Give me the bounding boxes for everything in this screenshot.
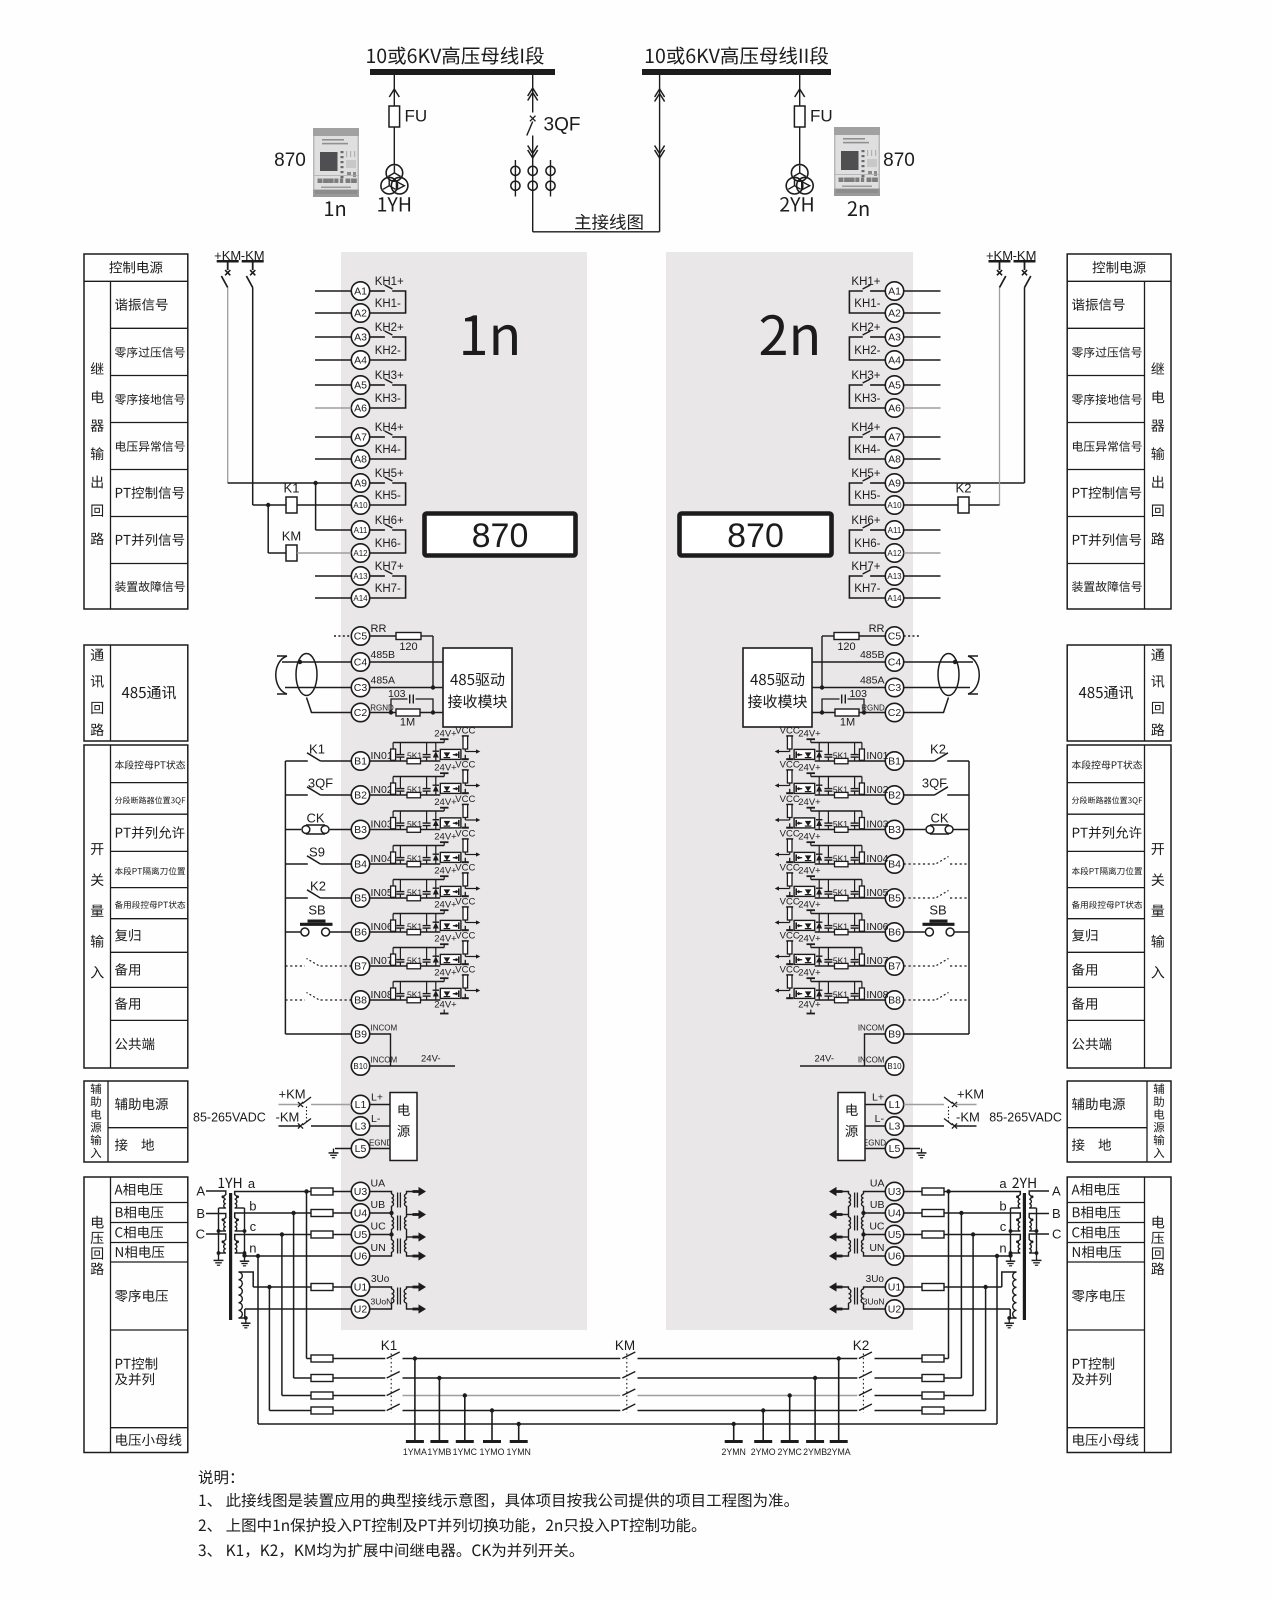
- svg-text:U3: U3: [888, 1186, 902, 1198]
- svg-text:IN08: IN08: [866, 989, 888, 1001]
- svg-text:U3: U3: [354, 1186, 368, 1198]
- svg-text:L-: L-: [371, 1113, 381, 1125]
- svg-text:1YMB: 1YMB: [427, 1447, 451, 1457]
- svg-text:IN06: IN06: [371, 921, 393, 933]
- svg-text:C5: C5: [354, 631, 368, 643]
- svg-text:-KM: -KM: [276, 1110, 300, 1125]
- svg-text:UC: UC: [371, 1221, 387, 1233]
- svg-text:KH2+: KH2+: [851, 322, 880, 334]
- svg-text:C3: C3: [888, 682, 902, 694]
- svg-text:2YMA: 2YMA: [827, 1447, 851, 1457]
- svg-text:K2: K2: [930, 742, 946, 757]
- svg-text:FU: FU: [405, 107, 428, 126]
- svg-text:IN06: IN06: [866, 921, 888, 933]
- svg-text:C2: C2: [888, 707, 902, 719]
- svg-text:L+: L+: [371, 1092, 383, 1104]
- svg-text:1M: 1M: [840, 717, 855, 729]
- svg-text:1YMA: 1YMA: [403, 1447, 427, 1457]
- svg-text:KH4-: KH4-: [854, 444, 880, 456]
- svg-text:B8: B8: [888, 995, 901, 1007]
- svg-text:VCC: VCC: [780, 931, 800, 942]
- svg-text:KH5-: KH5-: [854, 490, 880, 502]
- svg-text:A: A: [1052, 1184, 1061, 1199]
- svg-text:U5: U5: [888, 1229, 902, 1241]
- svg-text:U2: U2: [354, 1304, 368, 1316]
- svg-text:SB: SB: [308, 903, 325, 918]
- svg-text:24V+: 24V+: [434, 1000, 457, 1011]
- svg-text:B1: B1: [888, 756, 901, 768]
- svg-text:A7: A7: [354, 432, 367, 444]
- svg-text:24V+: 24V+: [434, 900, 457, 911]
- svg-text:+KM: +KM: [957, 1087, 984, 1102]
- svg-text:A2: A2: [354, 308, 367, 320]
- svg-text:EGND: EGND: [863, 1139, 886, 1148]
- svg-text:RR: RR: [371, 623, 387, 635]
- svg-text:K1: K1: [381, 1338, 398, 1353]
- svg-text:24V+: 24V+: [434, 797, 457, 808]
- svg-text:B7: B7: [354, 961, 367, 973]
- svg-text:A4: A4: [354, 355, 367, 367]
- svg-text:B2: B2: [888, 790, 901, 802]
- svg-text:VCC: VCC: [780, 794, 800, 805]
- svg-text:KH4-: KH4-: [375, 444, 401, 456]
- svg-text:KH1-: KH1-: [375, 298, 401, 310]
- svg-text:3QF: 3QF: [308, 776, 333, 791]
- svg-text:INCOM: INCOM: [858, 1024, 885, 1033]
- svg-text:B2: B2: [354, 790, 367, 802]
- svg-text:1M: 1M: [400, 717, 415, 729]
- svg-text:KH2+: KH2+: [375, 322, 404, 334]
- svg-text:K1: K1: [309, 742, 325, 757]
- svg-text:A5: A5: [888, 380, 901, 392]
- svg-text:A8: A8: [354, 454, 367, 466]
- svg-text:3UoN: 3UoN: [863, 1297, 885, 1307]
- svg-text:K2: K2: [310, 879, 326, 894]
- svg-text:C5: C5: [888, 631, 902, 643]
- svg-text:KH1+: KH1+: [851, 276, 880, 288]
- svg-text:INCOM: INCOM: [371, 1024, 398, 1033]
- svg-text:1YMO: 1YMO: [480, 1447, 505, 1457]
- svg-text:3UoN: 3UoN: [371, 1297, 393, 1307]
- svg-text:2YMC: 2YMC: [777, 1447, 802, 1457]
- svg-text:RR: RR: [869, 623, 885, 635]
- svg-text:FU: FU: [810, 107, 833, 126]
- svg-text:B8: B8: [354, 995, 367, 1007]
- svg-text:B3: B3: [354, 824, 367, 836]
- svg-text:B6: B6: [354, 927, 367, 939]
- svg-text:INCOM: INCOM: [371, 1056, 398, 1065]
- svg-text:A1: A1: [888, 286, 901, 298]
- svg-text:24V+: 24V+: [434, 763, 457, 774]
- svg-text:VCC: VCC: [455, 726, 475, 737]
- svg-text:103: 103: [849, 688, 867, 700]
- svg-text:IN08: IN08: [371, 989, 393, 1001]
- svg-text:870: 870: [274, 150, 306, 171]
- svg-text:VCC: VCC: [780, 863, 800, 874]
- svg-text:a: a: [248, 1176, 256, 1191]
- svg-text:UN: UN: [371, 1242, 386, 1254]
- svg-text:870: 870: [472, 517, 529, 555]
- svg-text:1YMC: 1YMC: [453, 1447, 478, 1457]
- svg-text:24V+: 24V+: [798, 797, 821, 808]
- svg-text:24V+: 24V+: [434, 934, 457, 945]
- svg-text:a: a: [999, 1176, 1007, 1191]
- svg-text:KH7-: KH7-: [375, 583, 401, 595]
- svg-text:IN05: IN05: [866, 887, 888, 899]
- svg-text:A8: A8: [888, 454, 901, 466]
- svg-text:K1: K1: [284, 481, 300, 496]
- svg-text:KH7-: KH7-: [854, 583, 880, 595]
- svg-text:KH5+: KH5+: [375, 468, 404, 480]
- svg-text:U5: U5: [354, 1229, 368, 1241]
- svg-text:A2: A2: [888, 308, 901, 320]
- svg-text:C2: C2: [354, 707, 368, 719]
- svg-text:485A: 485A: [371, 675, 396, 687]
- svg-text:KM: KM: [282, 529, 302, 544]
- svg-text:A12: A12: [353, 549, 368, 558]
- svg-text:VCC: VCC: [455, 897, 475, 908]
- svg-text:A12: A12: [887, 549, 902, 558]
- svg-text:n: n: [999, 1241, 1006, 1256]
- svg-text:485B: 485B: [371, 649, 396, 661]
- svg-text:KH3-: KH3-: [854, 393, 880, 405]
- svg-text:KH4+: KH4+: [851, 422, 880, 434]
- svg-text:24V+: 24V+: [798, 832, 821, 843]
- svg-text:3QF: 3QF: [922, 776, 947, 791]
- svg-text:L+: L+: [872, 1092, 884, 1104]
- svg-text:IN01: IN01: [371, 750, 393, 762]
- svg-text:B: B: [1052, 1206, 1061, 1221]
- svg-text:KM: KM: [615, 1338, 635, 1353]
- svg-text:870: 870: [727, 517, 784, 555]
- svg-text:B: B: [196, 1206, 205, 1221]
- svg-text:A6: A6: [354, 403, 367, 415]
- svg-text:24V+: 24V+: [434, 832, 457, 843]
- svg-text:+KM: +KM: [279, 1087, 306, 1102]
- svg-text:B6: B6: [888, 927, 901, 939]
- svg-text:A9: A9: [354, 478, 367, 490]
- svg-text:B9: B9: [888, 1029, 901, 1041]
- svg-text:n: n: [249, 1241, 256, 1256]
- svg-text:c: c: [250, 1219, 257, 1234]
- svg-text:VCC: VCC: [780, 760, 800, 771]
- svg-text:U4: U4: [888, 1208, 902, 1220]
- svg-text:24V+: 24V+: [434, 866, 457, 877]
- svg-text:KH5+: KH5+: [851, 468, 880, 480]
- svg-text:VCC: VCC: [455, 829, 475, 840]
- svg-text:IN07: IN07: [866, 955, 888, 967]
- svg-text:KH6-: KH6-: [854, 538, 880, 550]
- svg-text:VCC: VCC: [455, 965, 475, 976]
- svg-text:A4: A4: [888, 355, 901, 367]
- svg-text:VCC: VCC: [455, 760, 475, 771]
- svg-text:KH7+: KH7+: [375, 561, 404, 573]
- svg-text:B1: B1: [354, 756, 367, 768]
- svg-text:U6: U6: [888, 1251, 902, 1263]
- svg-text:B4: B4: [888, 859, 901, 871]
- svg-text:3Uo: 3Uo: [866, 1274, 885, 1285]
- svg-text:KH2-: KH2-: [375, 345, 401, 357]
- svg-text:B7: B7: [888, 961, 901, 973]
- svg-text:C3: C3: [354, 682, 368, 694]
- svg-text:C: C: [196, 1227, 205, 1242]
- svg-text:A3: A3: [888, 332, 901, 344]
- svg-text:24V+: 24V+: [798, 934, 821, 945]
- svg-text:A9: A9: [888, 478, 901, 490]
- svg-text:24V+: 24V+: [798, 763, 821, 774]
- svg-text:L-: L-: [875, 1113, 885, 1125]
- svg-text:K2: K2: [853, 1338, 870, 1353]
- svg-text:120: 120: [837, 641, 855, 653]
- svg-text:VCC: VCC: [455, 794, 475, 805]
- svg-text:UB: UB: [870, 1199, 885, 1211]
- svg-text:KH7+: KH7+: [851, 561, 880, 573]
- svg-text:UC: UC: [869, 1221, 885, 1233]
- svg-text:IN03: IN03: [866, 819, 888, 831]
- svg-text:24V+: 24V+: [798, 900, 821, 911]
- svg-text:2YMB: 2YMB: [803, 1447, 827, 1457]
- svg-text:UA: UA: [371, 1178, 386, 1190]
- svg-text:INCOM: INCOM: [858, 1056, 885, 1065]
- svg-text:B5: B5: [354, 893, 367, 905]
- svg-text:A5: A5: [354, 380, 367, 392]
- svg-text:CK: CK: [930, 811, 948, 826]
- svg-text:24V+: 24V+: [434, 968, 457, 979]
- svg-text:VCC: VCC: [455, 931, 475, 942]
- svg-text:KH2-: KH2-: [854, 345, 880, 357]
- svg-text:24V+: 24V+: [798, 1000, 821, 1011]
- svg-text:VCC: VCC: [780, 726, 800, 737]
- svg-text:B5: B5: [888, 893, 901, 905]
- svg-text:24V+: 24V+: [434, 729, 457, 740]
- svg-text:2YMO: 2YMO: [751, 1447, 776, 1457]
- svg-text:UN: UN: [869, 1242, 884, 1254]
- svg-text:120: 120: [399, 641, 417, 653]
- svg-text:2YMN: 2YMN: [721, 1447, 745, 1457]
- svg-text:U4: U4: [354, 1208, 368, 1220]
- svg-text:U2: U2: [888, 1304, 902, 1316]
- svg-text:KH3+: KH3+: [851, 370, 880, 382]
- svg-text:KH6+: KH6+: [851, 515, 880, 527]
- svg-text:K2: K2: [956, 481, 972, 496]
- svg-text:IN07: IN07: [371, 955, 393, 967]
- svg-text:IN02: IN02: [866, 784, 888, 796]
- svg-text:24V+: 24V+: [798, 866, 821, 877]
- svg-text:VCC: VCC: [780, 829, 800, 840]
- svg-text:VCC: VCC: [455, 863, 475, 874]
- svg-text:103: 103: [388, 688, 406, 700]
- svg-text:A10: A10: [887, 501, 902, 510]
- svg-text:A13: A13: [887, 572, 902, 581]
- svg-text:A11: A11: [888, 526, 902, 535]
- svg-text:B10: B10: [887, 1062, 902, 1071]
- svg-text:485A: 485A: [860, 675, 885, 687]
- svg-text:KH6+: KH6+: [375, 515, 404, 527]
- svg-text:C: C: [1052, 1227, 1061, 1242]
- svg-text:KH5-: KH5-: [375, 490, 401, 502]
- svg-text:B10: B10: [353, 1062, 368, 1071]
- svg-text:C4: C4: [354, 657, 368, 669]
- svg-text:CK: CK: [306, 811, 324, 826]
- svg-text:c: c: [1000, 1219, 1007, 1234]
- svg-text:L1: L1: [355, 1099, 367, 1111]
- svg-text:B4: B4: [354, 859, 367, 871]
- svg-text:VCC: VCC: [780, 897, 800, 908]
- svg-text:KH3+: KH3+: [375, 370, 404, 382]
- svg-text:IN05: IN05: [371, 887, 393, 899]
- svg-text:C4: C4: [888, 657, 902, 669]
- svg-text:KH1+: KH1+: [375, 276, 404, 288]
- svg-text:A14: A14: [887, 594, 902, 603]
- svg-text:L5: L5: [355, 1143, 367, 1155]
- svg-text:A3: A3: [354, 332, 367, 344]
- svg-text:3Uo: 3Uo: [371, 1274, 390, 1285]
- svg-text:b: b: [249, 1199, 256, 1214]
- svg-text:A6: A6: [888, 403, 901, 415]
- svg-text:-KM: -KM: [956, 1110, 980, 1125]
- svg-text:KH1-: KH1-: [854, 298, 880, 310]
- svg-text:IN03: IN03: [371, 819, 393, 831]
- svg-text:1YMN: 1YMN: [506, 1447, 530, 1457]
- svg-text:IN01: IN01: [866, 750, 888, 762]
- svg-text:UA: UA: [870, 1178, 885, 1190]
- svg-text:B9: B9: [354, 1029, 367, 1041]
- svg-text:VCC: VCC: [780, 965, 800, 976]
- svg-text:U1: U1: [888, 1282, 902, 1294]
- svg-text:S9: S9: [309, 845, 325, 860]
- svg-text:EGND: EGND: [369, 1139, 392, 1148]
- svg-text:IN04: IN04: [371, 853, 393, 865]
- svg-text:A10: A10: [353, 501, 368, 510]
- svg-text:KH4+: KH4+: [375, 422, 404, 434]
- svg-text:A: A: [196, 1184, 205, 1199]
- svg-text:24V+: 24V+: [798, 729, 821, 740]
- svg-text:A14: A14: [353, 594, 368, 603]
- svg-text:A13: A13: [353, 572, 368, 581]
- svg-text:UB: UB: [371, 1199, 386, 1211]
- svg-text:L1: L1: [889, 1099, 901, 1111]
- svg-text:U6: U6: [354, 1251, 368, 1263]
- svg-text:L3: L3: [355, 1121, 367, 1133]
- svg-text:KH3-: KH3-: [375, 393, 401, 405]
- svg-text:24V-: 24V-: [421, 1054, 441, 1065]
- svg-text:SB: SB: [929, 903, 946, 918]
- svg-text:A7: A7: [888, 432, 901, 444]
- svg-text:b: b: [999, 1199, 1006, 1214]
- svg-text:870: 870: [883, 150, 915, 171]
- svg-text:85-265VADC: 85-265VADC: [193, 1111, 266, 1125]
- svg-text:A1: A1: [354, 286, 367, 298]
- svg-text:U1: U1: [354, 1282, 368, 1294]
- svg-text:IN02: IN02: [371, 784, 393, 796]
- svg-text:B3: B3: [888, 824, 901, 836]
- svg-text:85-265VADC: 85-265VADC: [989, 1111, 1062, 1125]
- svg-text:485B: 485B: [860, 649, 885, 661]
- svg-text:24V+: 24V+: [798, 968, 821, 979]
- svg-text:A11: A11: [354, 526, 368, 535]
- svg-text:KH6-: KH6-: [375, 538, 401, 550]
- svg-text:L5: L5: [889, 1143, 901, 1155]
- svg-text:24V-: 24V-: [814, 1054, 834, 1065]
- svg-text:IN04: IN04: [866, 853, 888, 865]
- svg-text:3QF: 3QF: [544, 115, 581, 136]
- svg-text:L3: L3: [889, 1121, 901, 1133]
